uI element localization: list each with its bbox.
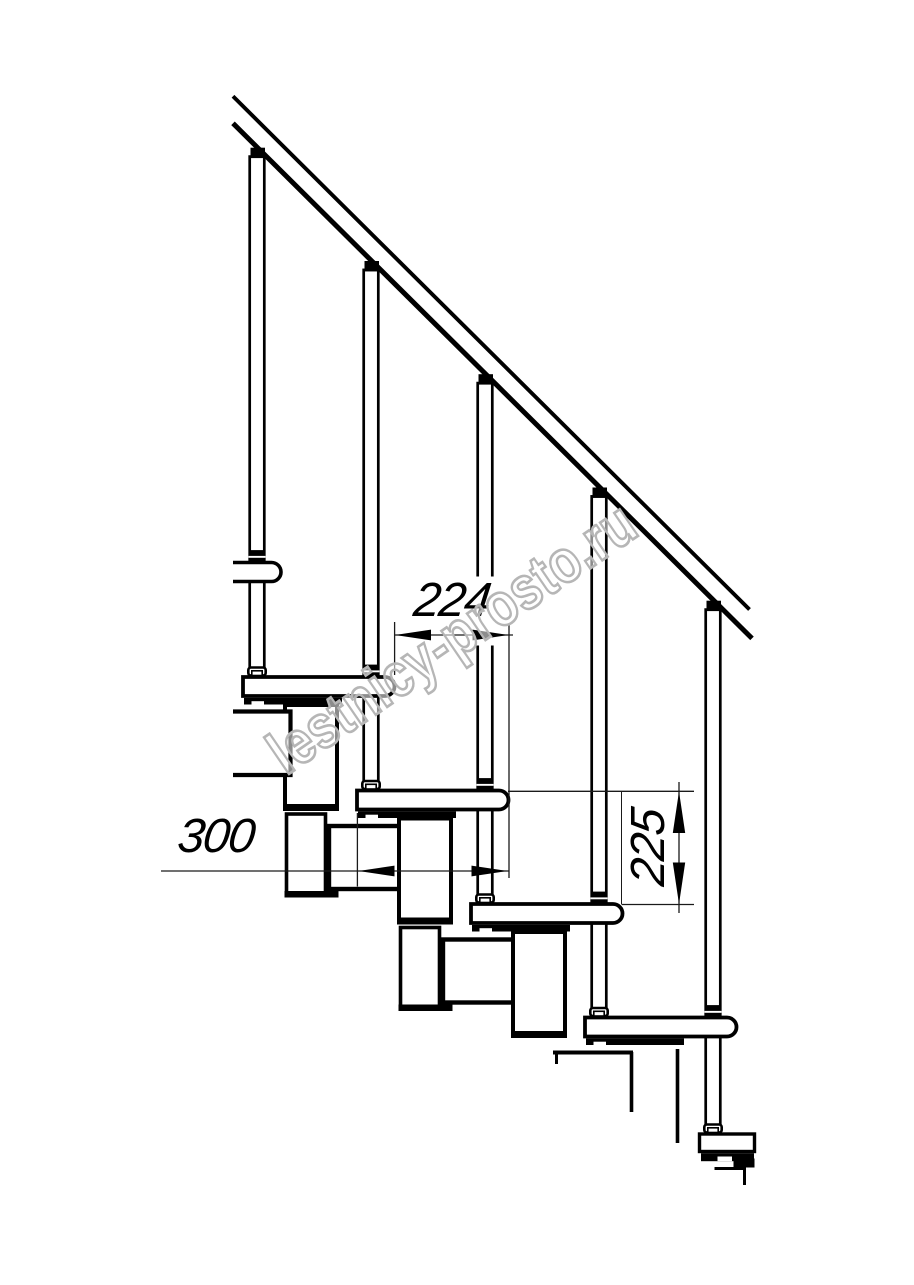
svg-text:300: 300 bbox=[175, 809, 259, 863]
svg-text:225: 225 bbox=[621, 804, 675, 889]
